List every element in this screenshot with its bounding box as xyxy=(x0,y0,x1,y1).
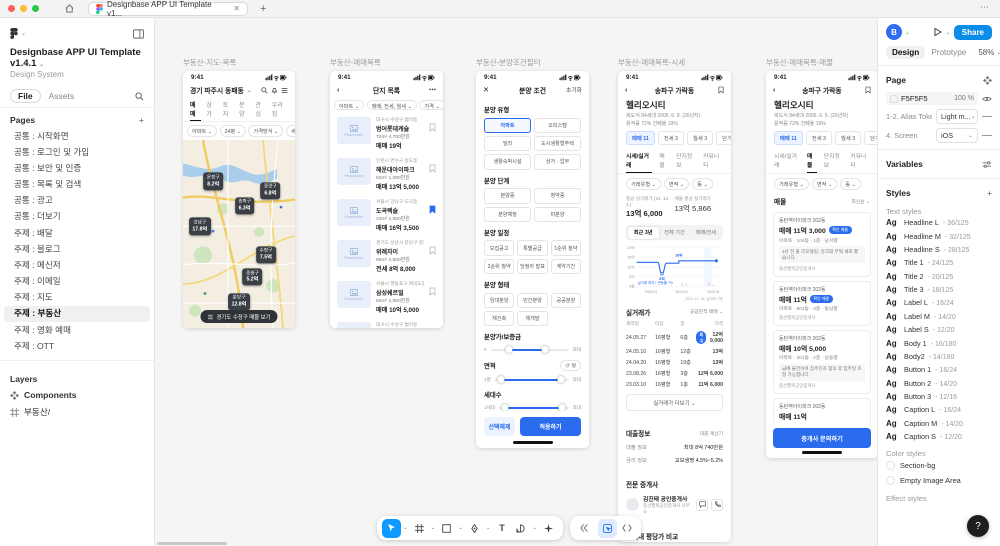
style-preview-glyph: Ag xyxy=(886,272,900,281)
chat-button[interactable] xyxy=(696,499,708,511)
sidebar-page-item[interactable]: 공통 : 로그인 및 가입 xyxy=(4,144,150,160)
style-name: Caption L xyxy=(904,405,935,414)
slider-handle[interactable] xyxy=(558,404,565,411)
sidebar-page-item[interactable]: 주제 : OTT xyxy=(4,338,150,354)
minimize-window-button[interactable] xyxy=(20,5,27,12)
text-style-item[interactable]: Ag Button 3 12/16 xyxy=(886,390,992,403)
item-size: 72m² 4,700만원 xyxy=(376,133,424,140)
apply-button[interactable]: 적용하기 xyxy=(520,417,581,436)
new-tab-button[interactable]: + xyxy=(260,3,266,15)
trades-filter[interactable]: 공급면적 매매 ⌄ xyxy=(690,308,723,315)
color-style-swatch xyxy=(886,461,895,470)
filter-option-chip[interactable]: 생활숙박시설 xyxy=(484,154,531,169)
detail-tabs: 시세/실거래매물단지정보커뮤니티 xyxy=(766,147,877,174)
sidebar-page-item[interactable]: 주제 : 배달 xyxy=(4,225,150,241)
text-styles-list: Ag Headline L 36/125 Ag Headline M 32/12… xyxy=(886,216,992,443)
detail-tab[interactable]: 매물 xyxy=(659,151,669,173)
slider-handle[interactable] xyxy=(497,376,504,383)
filter-chip[interactable]: 면적 ⌄ xyxy=(664,178,689,190)
bookmark-icon[interactable] xyxy=(429,164,436,173)
svg-text:6억: 6억 xyxy=(629,274,634,279)
detail-tab[interactable]: 커뮤니티 xyxy=(703,151,723,173)
add-page-icon[interactable]: + xyxy=(139,115,144,125)
detail-tab[interactable]: 시세/실거래 xyxy=(626,151,652,173)
listing-tab[interactable]: 상가 xyxy=(206,100,217,121)
map-area[interactable]: 운정구8.2억 중랑구6.8억 송파구6.3억 강남구17.8억 수정구7.5억… xyxy=(183,140,295,328)
frame-title[interactable]: 부동산-매매목록 xyxy=(330,57,443,68)
view-listings-button[interactable]: 경기도 수정구 매물 보기 xyxy=(200,310,277,323)
filter-option-chip[interactable]: 모집공고 xyxy=(484,240,514,255)
placeholder-image: Placeholder xyxy=(337,322,371,328)
actions-tool[interactable] xyxy=(539,519,558,538)
card-price: 매매 11억 xyxy=(779,294,807,304)
listing-card[interactable]: 동탄역아이파크 202동 매매 11억 아파트 · 104동 · 저층 · 남서… xyxy=(773,398,871,423)
price-range-slider[interactable] xyxy=(491,345,569,354)
home-indicator xyxy=(802,451,842,454)
style-meta: 14/180 xyxy=(929,354,955,361)
filter-chip[interactable]: 세대수 ⌄ xyxy=(286,125,295,137)
style-meta: 16/24 xyxy=(932,300,954,307)
table-row[interactable]: 23.03.10 16평형 1층 11억 6,000 xyxy=(618,379,731,390)
filter-option-chip[interactable]: 아파트 xyxy=(484,118,531,133)
style-name: Label L xyxy=(904,298,928,307)
filter-chip[interactable]: 거래유형 ⌄ xyxy=(774,178,809,190)
more-trades-button[interactable]: 실거래가 더보기 ⌄ xyxy=(626,394,723,411)
card-detail: 아파트 · 104동 · 1층 · 남서향 xyxy=(779,237,865,244)
tab-file[interactable]: File xyxy=(10,89,41,103)
filter-chip[interactable]: 매매, 전세, 월세 ⌄ xyxy=(367,100,417,110)
item-address: 대구시 수성구 범어동 xyxy=(376,322,424,328)
sidebar-page-item[interactable]: 주제 : 부동산 xyxy=(4,306,150,322)
trade-price: 11억 6,000 xyxy=(698,381,723,388)
filter-option-chip[interactable]: 재개발 xyxy=(517,311,547,326)
map-price-pill[interactable]: 송파구6.3억 xyxy=(235,197,255,214)
filter-chip[interactable]: 거래유형 ⌄ xyxy=(626,178,661,190)
frame-title[interactable]: 부동산-매매목록-매물 xyxy=(766,57,877,68)
unit-toggle[interactable]: 평 xyxy=(560,360,581,371)
left-sidebar: ⌄ Designbase APP UI Template v1.4.1 ⌄ De… xyxy=(0,18,155,546)
deal-chip[interactable]: 월세 3 xyxy=(687,131,713,145)
listing-tab[interactable]: 관심 xyxy=(255,100,266,121)
text-style-item[interactable]: Ag Headline M 32/125 xyxy=(886,229,992,242)
agent-firm: 중산행복공인중개사 사무소 xyxy=(643,503,692,515)
style-meta: 16/24 xyxy=(939,407,961,414)
detach-icon[interactable]: — xyxy=(982,130,992,141)
frame-title[interactable]: 부동산-분양조건필터 xyxy=(476,57,589,68)
text-style-item[interactable]: Ag Label L 16/24 xyxy=(886,296,992,309)
svg-text:12억: 12억 xyxy=(627,264,634,269)
text-style-item[interactable]: Ag Button 1 16/24 xyxy=(886,363,992,376)
style-name: Headline L xyxy=(904,218,939,227)
table-header: 계약일타입 층가격 xyxy=(618,319,731,329)
segment-option[interactable]: 전체 기간 xyxy=(659,227,690,239)
detail-tab[interactable]: 단지정보 xyxy=(676,151,696,173)
dev-mode-toggle[interactable] xyxy=(617,519,636,538)
table-row[interactable]: 24.04.20 16평형 19층 13억 xyxy=(618,357,731,368)
detail-tab[interactable]: 커뮤니티 xyxy=(850,151,870,173)
phone-icon xyxy=(714,501,721,508)
styles-grid-icon[interactable] xyxy=(983,76,992,85)
slider-min: 1평 xyxy=(484,377,491,383)
listing-card[interactable]: 동탄역아이파크 202동 매매 10억 5,000 아파트 · 201동 · 2… xyxy=(773,330,871,395)
file-tab[interactable]: Designbase APP UI Template v1... ✕ xyxy=(88,2,248,16)
household-range-slider[interactable] xyxy=(499,403,569,411)
shape-tool[interactable] xyxy=(437,519,456,538)
style-preview-glyph: Ag xyxy=(886,419,900,428)
slider-handle[interactable] xyxy=(542,346,549,353)
item-address: 서울시 강남구 도곡동 xyxy=(376,199,424,205)
trade-date: 24.05.27 xyxy=(626,335,655,341)
filter-option-chip[interactable]: 빌라 xyxy=(484,136,531,151)
frame-tool-chevron-icon[interactable]: ⌄ xyxy=(431,525,436,531)
table-row[interactable]: 24.05.10 16평형 12층 13억 xyxy=(618,346,731,357)
screen-market-price[interactable]: 9:41 ‹ 송파구 가락동 헬리오시티 복도식 84세대 2005. 6. 9… xyxy=(618,71,731,542)
item-size: 92m² 1,090만원 xyxy=(376,174,424,181)
filter-chips: 아파트 ⌄매매, 전세, 월세 ⌄가격 ⌄평형 ⌄ xyxy=(330,97,443,113)
svg-text:0원: 0원 xyxy=(629,284,634,289)
filter-option-chip[interactable]: 도시생활형주택 xyxy=(534,136,581,151)
text-style-item[interactable]: Ag Caption S 12/20 xyxy=(886,430,992,443)
listing-tab[interactable]: 분양 xyxy=(239,100,250,121)
complex-info: 복도식 84세대 2005. 6. 9. (20년차) xyxy=(766,111,877,119)
filter-chip[interactable]: 동 ⌄ xyxy=(692,178,713,190)
map-price-pill[interactable]: 중원구5.2억 xyxy=(243,269,263,286)
screen-filter[interactable]: 9:41 ✕ 분양 조건 초기화 분양 유형 아파트오피스텔빌라도시생활형주택생… xyxy=(476,71,589,448)
browser-chrome: Designbase APP UI Template v1... ✕ + ⋯ xyxy=(0,0,1000,18)
sidebar-page-item[interactable]: 공통 : 광고 xyxy=(4,193,150,209)
bell-icon[interactable] xyxy=(271,87,278,94)
collapse-toolbar-icon[interactable] xyxy=(575,519,594,538)
filter-option-chip[interactable]: 분양예정 xyxy=(484,207,531,222)
slider-handle[interactable] xyxy=(558,376,565,383)
page-section-label: Page xyxy=(886,75,906,85)
add-style-icon[interactable]: + xyxy=(987,188,992,198)
slider-handle[interactable] xyxy=(506,346,513,353)
sort-dropdown[interactable]: 최신순 ⌄ xyxy=(851,198,870,205)
stat-label: 평균 실거래가 (24. 12. 4.) xyxy=(626,196,675,207)
screen-dropdown[interactable]: iOS⌄ xyxy=(936,128,978,143)
location-selector[interactable]: 경기 파주시 동패동 xyxy=(190,85,244,95)
text-style-item[interactable]: Ag Title 3 18/125 xyxy=(886,283,992,296)
list-item[interactable]: Placeholder 대구시 수성구 범어동 범어롯데캐슬 72m² 4,70… xyxy=(330,113,443,154)
text-tool[interactable]: T xyxy=(492,519,511,538)
status-icons xyxy=(559,74,581,81)
move-tool[interactable] xyxy=(382,519,401,538)
list-item[interactable]: Placeholder 인천시 연수구 송도동 해운대아이파크 92m² 1,0… xyxy=(330,154,443,195)
pen-tool-chevron-icon[interactable]: ⌄ xyxy=(486,525,491,531)
frame-title[interactable]: 부동산-지도-목록 xyxy=(183,57,295,68)
bookmark-icon[interactable] xyxy=(718,86,724,94)
filter-chip[interactable]: 가격방식 ⌄ xyxy=(248,125,283,137)
comment-tool[interactable] xyxy=(511,519,530,538)
deal-chip[interactable]: 전세 3 xyxy=(658,131,684,145)
layer-frame-busan[interactable]: 부동산/ xyxy=(0,403,154,421)
deal-chip[interactable]: 월세 3 xyxy=(835,131,861,145)
filter-option-chip[interactable]: 공공분양 xyxy=(551,293,581,308)
close-window-button[interactable] xyxy=(8,5,15,12)
list-item[interactable]: Placeholder 서울시 강남구 도곡동 도곡렉슬 33m² 2,550만… xyxy=(330,195,443,236)
section-title: 분양가/보증금 xyxy=(484,332,581,341)
contact-agent-button[interactable]: 중개사 문의하기 xyxy=(773,428,871,448)
figma-canvas[interactable]: 부동산-지도-목록 9:41 경기 파주시 동패동 ⌄ 매매상가토지분양관심우리… xyxy=(155,18,877,546)
chevron-down-icon: ⌄ xyxy=(996,49,1000,56)
image-icon xyxy=(350,248,358,255)
verified-badge: 확인 매물 xyxy=(810,295,833,303)
list-item[interactable]: Placeholder 경기도 성남시 분당구 정자동 위례자이 95m² 3,… xyxy=(330,236,443,277)
right-panel: B ⌄ ⌄ Share Design Prototype 58%⌄ Page F… xyxy=(877,18,1000,546)
map-price-pill[interactable]: 운정구8.2억 xyxy=(203,173,223,190)
style-name: Button 2 xyxy=(904,379,931,388)
sidebar-page-item[interactable]: 공통 : 시작화면 xyxy=(4,128,150,144)
deal-chip[interactable]: 매매 11 xyxy=(626,131,655,145)
menu-icon[interactable] xyxy=(281,87,288,94)
filter-chip[interactable]: 24평 ⌄ xyxy=(220,125,246,137)
filter-option-chip[interactable]: 당첨자 발표 xyxy=(517,259,547,274)
sidebar-page-item[interactable]: 공통 : 더보기 xyxy=(4,209,150,225)
listing-tab[interactable]: 매매 xyxy=(190,100,201,121)
filter-chip[interactable]: 아파트 ⌄ xyxy=(334,100,364,110)
stat-value: 13억 5,866 xyxy=(675,203,724,214)
text-style-item[interactable]: Ag Body2 14/180 xyxy=(886,350,992,363)
deal-chip[interactable]: 단기 xyxy=(716,131,731,145)
listing-card[interactable]: 동탄역아이파크 202동 매매 11억확인 매물 아파트 · 601동 · 3층… xyxy=(773,281,871,326)
deal-chip[interactable]: 매매 11 xyxy=(774,131,803,145)
style-meta: 14/20 xyxy=(934,314,956,321)
trade-price: 13억 xyxy=(712,348,723,355)
trade-price: 12억 6,000 xyxy=(698,370,723,377)
filter-option-chip[interactable]: 2순위 청약 xyxy=(484,259,514,274)
loan-calculator-link[interactable]: 대출 계산기 xyxy=(700,430,723,437)
filter-option-chip[interactable]: 분양중 xyxy=(484,188,531,203)
style-preview-glyph: Ag xyxy=(886,432,900,441)
segment-option[interactable]: 최근 3년 xyxy=(628,227,659,239)
chevron-down-icon: ⌄ xyxy=(968,132,973,139)
avatar xyxy=(626,498,639,511)
color-style-item[interactable]: Empty Image Area xyxy=(886,473,992,488)
style-preview-glyph: Ag xyxy=(886,245,900,254)
deal-chip[interactable]: 단기 xyxy=(864,131,877,145)
svg-text:2023.01: 2023.01 xyxy=(645,290,658,294)
trade-floor: 19층 xyxy=(680,359,696,366)
horizontal-scrollbar[interactable] xyxy=(157,542,227,546)
item-address: 서울시 영등포구 여의도동 xyxy=(376,281,424,287)
filter-option-chip[interactable]: 미분양 xyxy=(534,207,581,222)
filter-option-chip[interactable]: 재건축 xyxy=(484,311,514,326)
map-price-pill[interactable]: 강남구17.8억 xyxy=(189,218,211,235)
design-mode-toggle[interactable] xyxy=(598,519,617,538)
reset-button[interactable]: 초기화 xyxy=(566,85,582,94)
text-style-item[interactable]: Ag Headline L 36/125 xyxy=(886,216,992,229)
comment-tool-chevron-icon[interactable]: ⌄ xyxy=(532,525,537,531)
detach-icon[interactable]: — xyxy=(982,111,992,122)
filter-option-chip[interactable]: 상가 · 업무 xyxy=(534,154,581,169)
list-item[interactable]: Placeholder 대구시 수성구 범어동 범어롯데캐슬 72m² 4,70… xyxy=(330,318,443,328)
call-button[interactable] xyxy=(711,499,723,511)
figma-menu-logo-icon[interactable] xyxy=(10,28,18,39)
high-badge: 최고 xyxy=(696,331,706,345)
text-style-item[interactable]: Ag Headline S 28/125 xyxy=(886,243,992,256)
window-more-icon[interactable]: ⋯ xyxy=(980,2,990,13)
card-agent: 중산행복공인중개사 xyxy=(779,383,865,389)
more-icon[interactable]: ⋯ xyxy=(429,85,436,94)
pages-label: Pages xyxy=(10,115,35,125)
text-style-item[interactable]: Ag Title 1 24/125 xyxy=(886,256,992,269)
filter-option-chip[interactable]: 청약중 xyxy=(534,188,581,203)
bookmark-icon[interactable] xyxy=(429,123,436,132)
filter-chip[interactable]: 면적 ⌄ xyxy=(812,178,837,190)
filter-option-chip[interactable]: 특별공급 xyxy=(517,240,547,255)
card-quote: 1년 전 올 리모델링, 싱크대 부엌 새로 했습니다. xyxy=(779,246,865,263)
card-detail: 아파트 · 104동 · 저층 · 남서향 xyxy=(779,423,865,424)
filter-option-chip[interactable]: 임대분양 xyxy=(484,293,514,308)
card-complex: 동탄역아이파크 202동 xyxy=(779,335,865,342)
sidebar-page-item[interactable]: 주제 : 지도 xyxy=(4,290,150,306)
status-time: 9:41 xyxy=(774,74,787,81)
filter-option-chip[interactable]: 1순위 청약 xyxy=(551,240,581,255)
style-name: Title 1 xyxy=(904,258,924,267)
item-size: 33m² 2,550만원 xyxy=(376,215,424,222)
map-price-pill[interactable]: 중랑구6.8억 xyxy=(261,182,281,199)
chevron-down-icon[interactable]: ⌄ xyxy=(21,30,26,37)
stage-chip-group: 분양중청약중분양예정미분양 xyxy=(484,188,581,222)
page-color-field[interactable]: F5F5F5 100 % xyxy=(886,92,978,105)
tab-prototype[interactable]: Prototype xyxy=(931,48,966,57)
clear-selection-button[interactable]: 선택해제 xyxy=(484,417,515,436)
shape-tool-chevron-icon[interactable]: ⌄ xyxy=(458,525,463,531)
style-meta: 12/16 xyxy=(935,394,957,401)
sidebar-page-item[interactable]: 주제 : 블로그 xyxy=(4,241,150,257)
tab-assets[interactable]: Assets xyxy=(49,91,75,101)
filter-option-chip[interactable]: 오피스텔 xyxy=(534,118,581,133)
area-range-slider[interactable] xyxy=(495,375,569,384)
text-style-item[interactable]: Ag Caption M 14/20 xyxy=(886,417,992,430)
item-address: 대구시 수성구 범어동 xyxy=(376,117,424,123)
slider-max: 최대 xyxy=(573,347,581,353)
map-price-pill[interactable]: 분당구12.8억 xyxy=(228,293,250,310)
card-price: 매매 10억 5,000 xyxy=(779,343,826,353)
frame-title[interactable]: 부동산-매매목록-시세 xyxy=(618,57,731,68)
sidebar-page-item[interactable]: 주제 : 영화 예매 xyxy=(4,322,150,338)
style-name: Title 2 xyxy=(904,272,924,281)
segment-option[interactable]: 매매/전세 xyxy=(690,227,721,239)
text-style-item[interactable]: Ag Label S 12/20 xyxy=(886,323,992,336)
item-price: 매매 10억 5,000 xyxy=(376,305,424,314)
home-icon[interactable] xyxy=(65,4,74,13)
present-icon[interactable] xyxy=(933,27,943,37)
table-row[interactable]: 23.08.26 16평형 3층 12억 6,000 xyxy=(618,368,731,379)
adjust-icon[interactable] xyxy=(982,160,992,169)
slider-handle[interactable] xyxy=(501,404,508,411)
style-meta: 12/20 xyxy=(940,434,962,441)
text-style-item[interactable]: Ag Title 2 20/125 xyxy=(886,270,992,283)
bookmark-icon[interactable] xyxy=(429,287,436,296)
filter-chip[interactable]: 아파트 ⌄ xyxy=(187,125,217,137)
sidebar-page-item[interactable]: 주제 : 메신저 xyxy=(4,257,150,273)
move-tool-chevron-icon[interactable]: ⌄ xyxy=(403,525,408,531)
text-style-item[interactable]: Ag Body 1 16/180 xyxy=(886,336,992,349)
list-item[interactable]: Placeholder 서울시 영등포구 여의도동 삼성쉐르빌 66m² 2,9… xyxy=(330,277,443,318)
sidebar-page-item[interactable]: 공통 : 보안 및 인증 xyxy=(4,160,150,176)
style-preview-glyph: Ag xyxy=(886,312,900,321)
maximize-window-button[interactable] xyxy=(32,5,39,12)
table-row[interactable]: 24.05.27 16평형 6층 최고12억 9,000 xyxy=(618,329,731,347)
color-swatch[interactable] xyxy=(890,95,898,103)
item-name: 해운대아이파크 xyxy=(376,165,424,174)
bookmark-icon[interactable] xyxy=(429,246,436,255)
text-style-item[interactable]: Ag Button 2 14/20 xyxy=(886,377,992,390)
share-button[interactable]: Share xyxy=(954,25,992,40)
alias-token-dropdown[interactable]: Light m...⌄ xyxy=(936,109,978,124)
listing-cards: 동탄역아이파크 202동 매매 11억 3,000확인 매물 아파트 · 104… xyxy=(766,208,877,423)
detail-tab[interactable]: 매물 xyxy=(807,151,817,173)
help-button[interactable]: ? xyxy=(967,515,989,537)
style-preview-glyph: Ag xyxy=(886,285,900,294)
section-title: 대출정보 xyxy=(626,428,650,438)
chat-icon xyxy=(699,501,706,508)
listing-card[interactable]: 동탄역아이파크 202동 매매 11억 3,000확인 매물 아파트 · 104… xyxy=(773,212,871,277)
close-tab-icon[interactable]: ✕ xyxy=(233,4,240,13)
trade-date: 23.08.26 xyxy=(626,371,655,377)
style-preview-glyph: Ag xyxy=(886,392,900,401)
deal-chip[interactable]: 전세 3 xyxy=(806,131,832,145)
collapse-panel-icon[interactable] xyxy=(133,29,144,39)
filter-chip[interactable]: 동 ⌄ xyxy=(840,178,861,190)
complex-info: 복도식 84세대 2005. 6. 9. (20년차) xyxy=(618,111,731,119)
item-price: 매매 13억 5,000 xyxy=(376,182,424,191)
detail-tab[interactable]: 시세/실거래 xyxy=(774,151,800,173)
style-preview-glyph: Ag xyxy=(886,379,900,388)
filter-option-chip[interactable]: 민간분양 xyxy=(517,293,547,308)
text-style-item[interactable]: Ag Caption L 16/24 xyxy=(886,403,992,416)
loan-row: 금리 정보교보생명 4.5%~5.2% xyxy=(618,453,731,466)
filter-chip[interactable]: 가격 ⌄ xyxy=(419,100,443,110)
listing-tab[interactable]: 우리집 xyxy=(272,100,288,121)
search-icon[interactable] xyxy=(261,87,268,94)
slider-min: 1세대 xyxy=(484,405,495,411)
listing-tab[interactable]: 토지 xyxy=(223,100,234,121)
bookmark-icon[interactable] xyxy=(429,205,436,214)
search-icon[interactable] xyxy=(135,92,144,101)
screen-listings[interactable]: 9:41 ‹ 송파구 가락동 헬리오시티 복도식 84세대 2005. 6. 9… xyxy=(766,71,877,458)
map-price-pill[interactable]: 수정구7.5억 xyxy=(256,246,276,263)
frame-tool[interactable] xyxy=(410,519,429,538)
avatar[interactable]: B xyxy=(886,24,902,40)
variable-row-label: 4. Screen xyxy=(886,131,932,140)
pen-tool[interactable] xyxy=(465,519,484,538)
tab-design[interactable]: Design xyxy=(886,46,925,59)
color-style-item[interactable]: Section-bg xyxy=(886,458,992,473)
section-title: 분양 일정 xyxy=(484,228,581,237)
zoom-level[interactable]: 58%⌄ xyxy=(978,48,1000,57)
svg-text:2025.01: 2025.01 xyxy=(707,290,720,294)
text-style-item[interactable]: Ag Label M 14/20 xyxy=(886,310,992,323)
sidebar-page-item[interactable]: 공통 : 목록 및 검색 xyxy=(4,177,150,193)
bookmark-icon[interactable] xyxy=(865,86,871,94)
filter-option-chip[interactable]: 계약기간 xyxy=(551,259,581,274)
screen-map[interactable]: 9:41 경기 파주시 동패동 ⌄ 매매상가토지분양관심우리집 아파트 ⌄24평… xyxy=(183,71,295,328)
agent-row[interactable]: 김진태 공인중개사 중산행복공인중개사 사무소 xyxy=(618,491,731,518)
sidebar-page-item[interactable]: 주제 : 이메일 xyxy=(4,274,150,290)
screen-complex-list[interactable]: 9:41 ‹ 단지 목록 ⋯ 아파트 ⌄매매, 전세, 월세 ⌄가격 ⌄평형 ⌄ xyxy=(330,71,443,328)
detail-tab[interactable]: 단지정보 xyxy=(824,151,844,173)
present-chevron-icon[interactable]: ⌄ xyxy=(946,29,951,36)
visibility-eye-icon[interactable] xyxy=(982,95,992,103)
layer-components[interactable]: Components xyxy=(0,387,154,403)
refresh-icon xyxy=(565,363,570,368)
project-title[interactable]: Designbase APP UI Template v1.4.1 ⌄ xyxy=(0,41,154,69)
chevron-down-icon[interactable]: ⌄ xyxy=(905,29,910,36)
styles-section-label: Styles xyxy=(886,188,911,198)
